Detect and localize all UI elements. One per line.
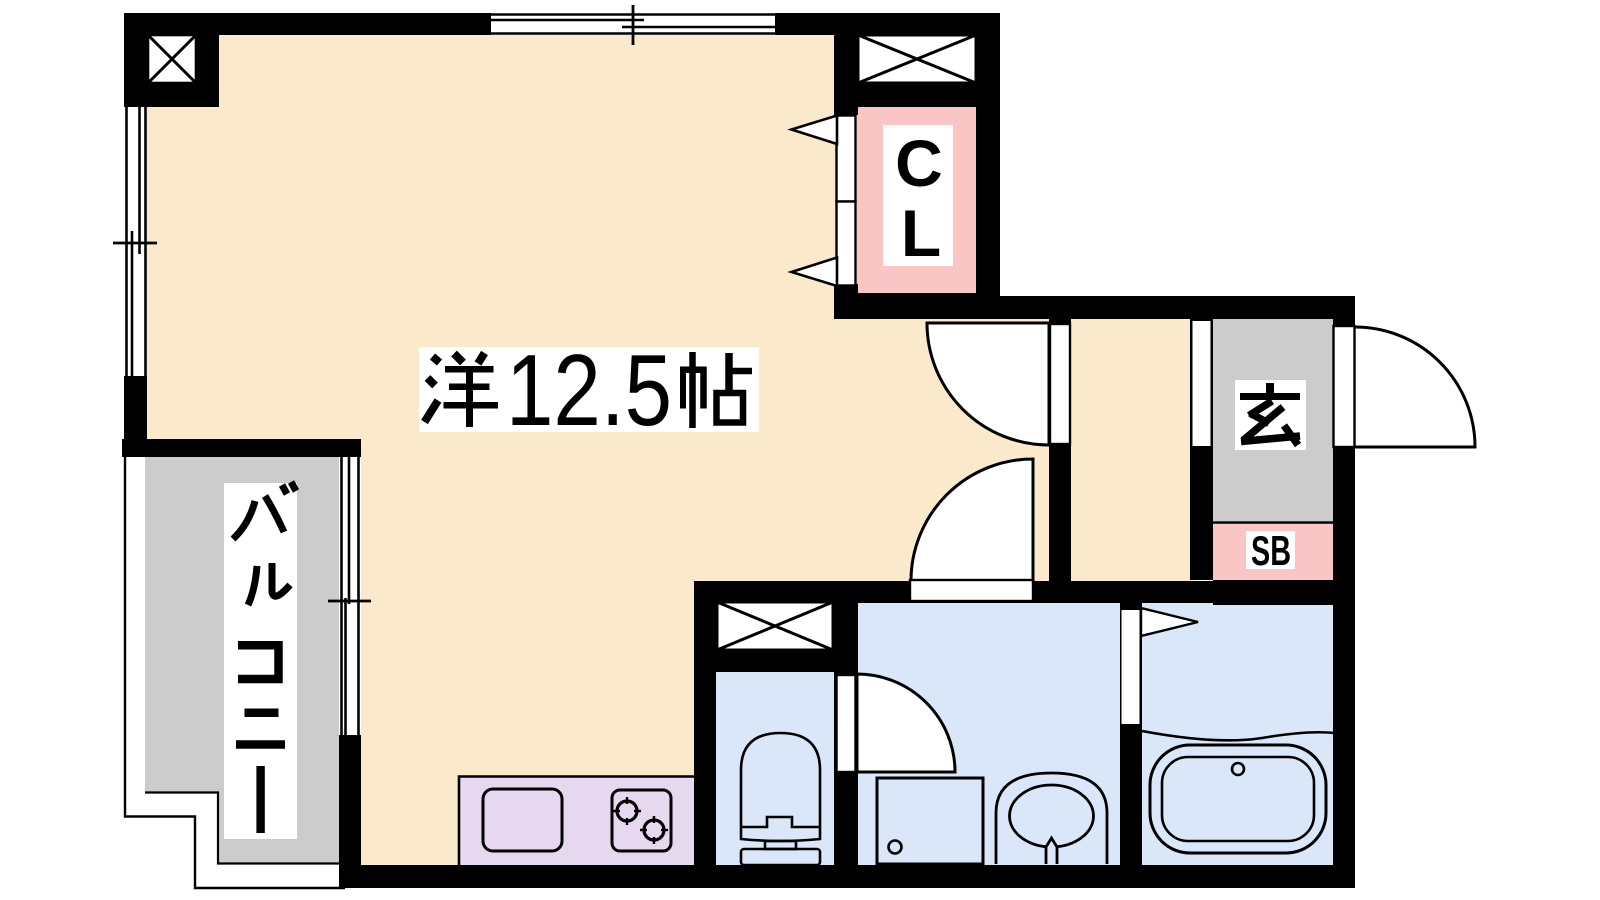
svg-text:SB: SB [1251, 527, 1291, 574]
svg-text:L: L [901, 196, 941, 270]
svg-text:C: C [895, 126, 943, 200]
svg-text:12.5: 12.5 [506, 335, 672, 447]
